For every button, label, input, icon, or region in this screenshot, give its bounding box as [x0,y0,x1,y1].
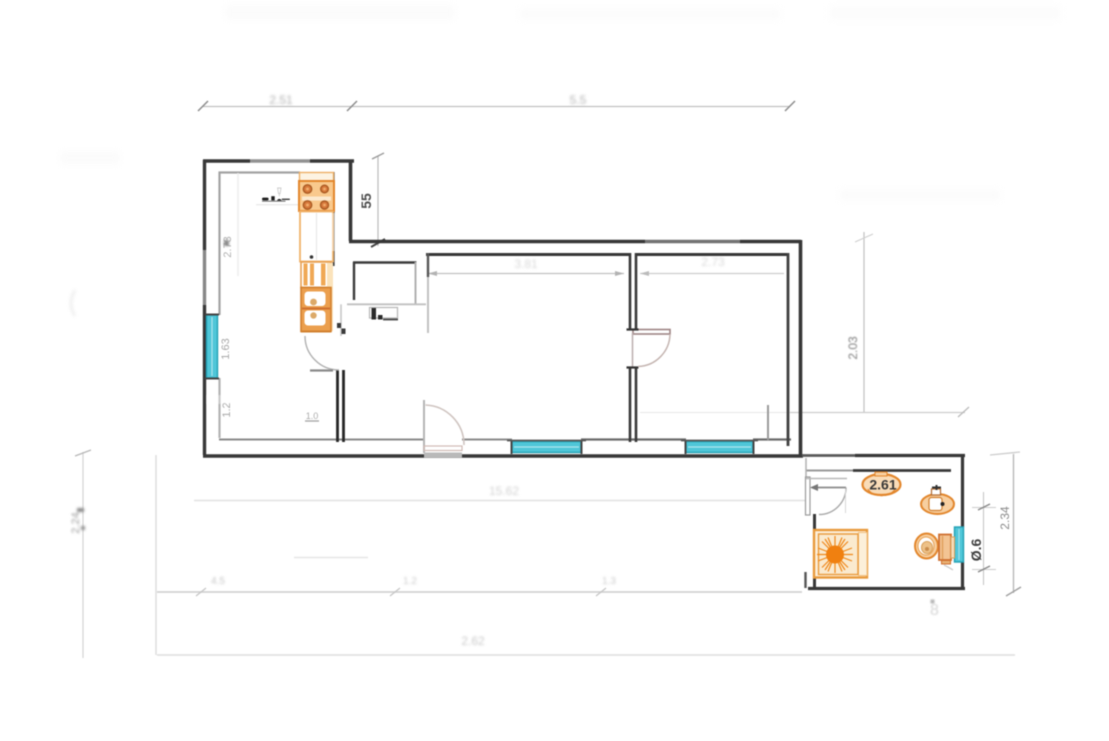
svg-text:2.62: 2.62 [461,634,485,648]
svg-text:15.62: 15.62 [489,484,519,498]
svg-text:2.51: 2.51 [269,93,293,107]
svg-text:2.24: 2.24 [70,512,82,533]
svg-text:2.73: 2.73 [701,255,725,269]
svg-text:2.34: 2.34 [998,506,1012,530]
svg-text:4.5: 4.5 [211,576,225,587]
svg-text:1.2: 1.2 [221,402,233,417]
svg-text:1.2: 1.2 [403,576,417,587]
svg-text:8: 8 [930,602,939,619]
svg-text:2.73: 2.73 [222,236,234,257]
svg-text:55: 55 [358,193,374,209]
svg-text:1.63: 1.63 [220,338,232,359]
svg-text:5.5: 5.5 [570,93,587,107]
svg-text:3.81: 3.81 [514,257,538,271]
svg-text:2.61: 2.61 [869,477,896,493]
svg-text:Ø.6: Ø.6 [968,539,984,562]
svg-text:2.03: 2.03 [846,336,860,360]
svg-text:1.3: 1.3 [602,576,616,587]
svg-text:1.0: 1.0 [306,411,319,421]
